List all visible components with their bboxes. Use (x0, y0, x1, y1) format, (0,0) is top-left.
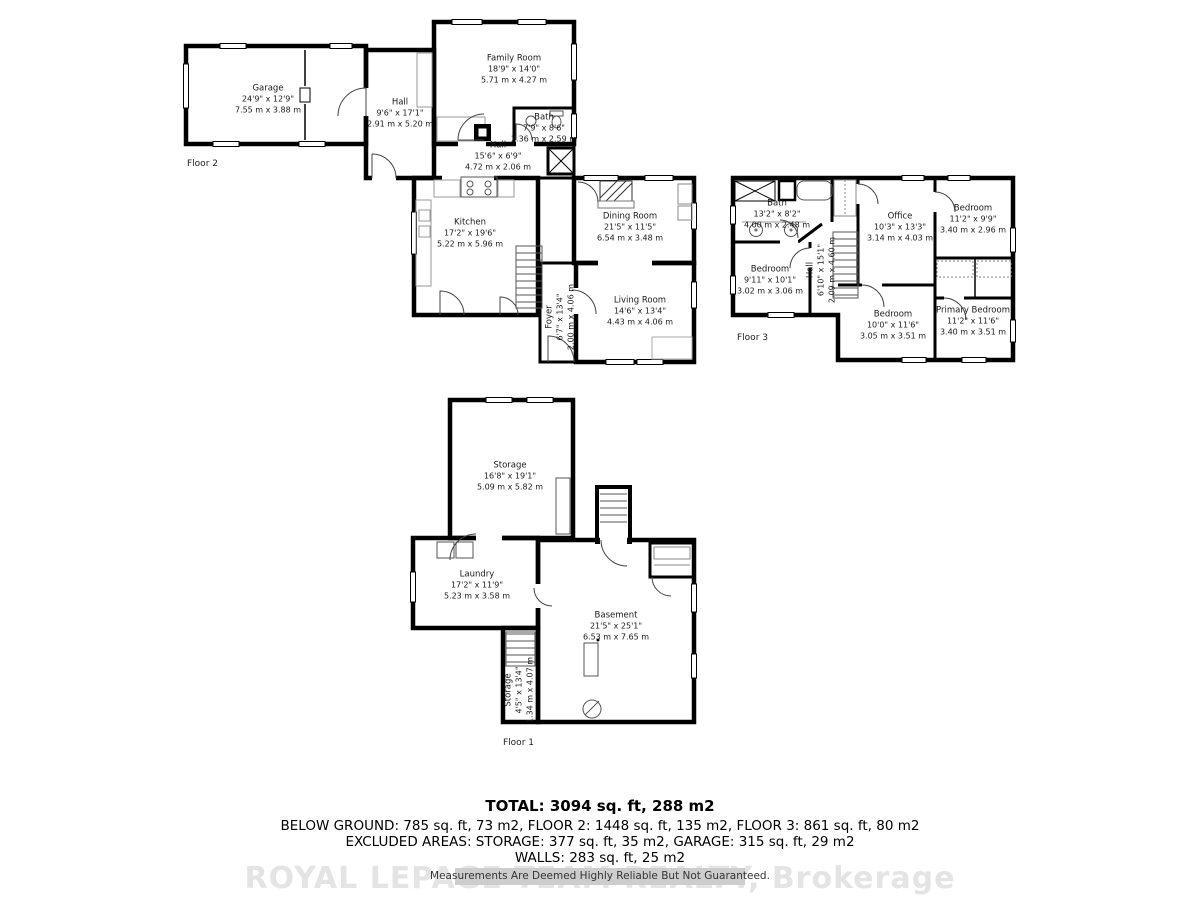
floor1-plan (411, 398, 697, 723)
room-label-bedroom-top-right: Bedroom 11'2" x 9'9" 3.40 m x 2.96 m (940, 203, 1006, 236)
room-name: Bedroom (940, 203, 1006, 214)
floor1-tag: Floor 1 (503, 738, 534, 748)
storage-closet (556, 478, 570, 534)
bedroom-closet-shelves (937, 261, 1011, 277)
room-dim-metric: 2.91 m x 5.20 m (367, 120, 433, 131)
room-name: Dining Room (597, 211, 663, 222)
room-dim-imperial: 14'6" x 13'4" (607, 307, 673, 318)
room-label-laundry: Laundry 17'2" x 11'9" 5.23 m x 3.58 m (444, 569, 510, 602)
room-dim-metric: 7.55 m x 3.88 m (235, 106, 301, 117)
floor2-tag: Floor 2 (187, 159, 218, 169)
room-dim-imperial: 10'3" x 13'3" (867, 223, 933, 234)
room-name: Basement (583, 610, 649, 621)
room-dim-metric: 3.40 m x 2.96 m (940, 226, 1006, 237)
room-dim-imperial: 6'10" x 15'1" (817, 237, 828, 303)
room-dim-imperial: 9'11" x 10'1" (737, 276, 803, 287)
room-dim-metric: 5.71 m x 4.27 m (481, 76, 547, 87)
room-label-garage: Garage 24'9" x 12'9" 7.55 m x 3.88 m (235, 83, 301, 116)
room-dim-metric: 4.72 m x 2.06 m (465, 163, 531, 174)
room-name: Primary Bedroom (936, 305, 1010, 316)
room-dim-imperial: 4'5" x 13'4" (515, 657, 526, 723)
room-label-storage-large: Storage 16'8" x 19'1" 5.09 m x 5.82 m (477, 460, 543, 493)
room-name: Office (867, 211, 933, 222)
room-dim-imperial: 17'2" x 11'9" (444, 581, 510, 592)
area-summary: TOTAL: 3094 sq. ft, 288 m2 BELOW GROUND:… (0, 797, 1200, 866)
room-label-basement: Basement 21'5" x 25'1" 6.53 m x 7.65 m (583, 610, 649, 643)
room-name: Living Room (607, 295, 673, 306)
room-dim-imperial: 6'7" x 13'4" (556, 284, 567, 350)
closet-x-icon (548, 148, 574, 174)
room-label-hall-floor3: Hall 6'10" x 15'1" 2.09 m x 4.60 m (805, 237, 838, 303)
room-label-foyer: Foyer 6'7" x 13'4" 2.00 m x 4.06 m (544, 284, 577, 350)
room-label-dining-room: Dining Room 21'5" x 11'5" 6.54 m x 3.48 … (597, 211, 663, 244)
room-name: Foyer (544, 284, 555, 350)
linen-closet (779, 181, 795, 200)
room-dim-metric: 5.23 m x 3.58 m (444, 592, 510, 603)
room-dim-imperial: 10'0" x 11'6" (860, 321, 926, 332)
room-label-hall-lower: Hall 15'6" x 6'9" 4.72 m x 2.06 m (465, 140, 531, 173)
room-dim-imperial: 18'9" x 14'0" (481, 65, 547, 76)
room-name: Hall (805, 237, 816, 303)
floor-areas: BELOW GROUND: 785 sq. ft, 73 m2, FLOOR 2… (0, 818, 1200, 834)
room-dim-imperial: 21'5" x 25'1" (583, 622, 649, 633)
dining-shelves (678, 184, 692, 220)
room-dim-imperial: 21'5" x 11'5" (597, 223, 663, 234)
room-dim-imperial: 13'2" x 8'2" (744, 210, 810, 221)
room-name: Bath (744, 198, 810, 209)
sofa (652, 337, 692, 359)
room-dim-imperial: 9'6" x 17'1" (367, 109, 433, 120)
room-dim-metric: 2.00 m x 4.06 m (567, 284, 578, 350)
room-label-family-room: Family Room 18'9" x 14'0" 5.71 m x 4.27 … (481, 53, 547, 86)
measurement-disclaimer: Measurements Are Deemed Highly Reliable … (0, 870, 1200, 882)
room-label-hall-upper: Hall 9'6" x 17'1" 2.91 m x 5.20 m (367, 97, 433, 130)
room-dim-metric: 1.34 m x 4.07 m (526, 657, 537, 723)
room-name: Garage (235, 83, 301, 94)
room-dim-imperial: 11'2" x 9'9" (940, 215, 1006, 226)
room-dim-imperial: 24'9" x 12'9" (235, 95, 301, 106)
room-label-living-room: Living Room 14'6" x 13'4" 4.43 m x 4.06 … (607, 295, 673, 328)
room-dim-metric: 3.14 m x 4.03 m (867, 234, 933, 245)
room-dim-metric: 5.22 m x 5.96 m (437, 240, 503, 251)
room-dim-imperial: 16'8" x 19'1" (477, 472, 543, 483)
room-name: Storage (477, 460, 543, 471)
fireplace-icon (598, 181, 634, 208)
basement-closet-shelves (654, 547, 690, 565)
room-dim-metric: 4.43 m x 4.06 m (607, 318, 673, 329)
room-dim-metric: 3.02 m x 3.06 m (737, 287, 803, 298)
chimney-icon (474, 124, 491, 141)
room-dim-metric: 4.00 m x 2.48 m (744, 221, 810, 232)
room-name: Bath (511, 112, 577, 123)
room-dim-metric: 6.54 m x 3.48 m (597, 234, 663, 245)
sump-pump-icon (583, 700, 601, 718)
floor3-tag: Floor 3 (737, 333, 768, 343)
floorplan-page: Garage 24'9" x 12'9" 7.55 m x 3.88 m Hal… (0, 0, 1200, 900)
excluded-areas: EXCLUDED AREAS: STORAGE: 377 sq. ft, 35 … (0, 834, 1200, 850)
hall-closet (834, 180, 856, 216)
room-name: Bedroom (860, 309, 926, 320)
room-dim-metric: 3.05 m x 3.51 m (860, 332, 926, 343)
room-label-bath-floor3: Bath 13'2" x 8'2" 4.00 m x 2.48 m (744, 198, 810, 231)
room-dim-imperial: 7'9" x 8'6" (511, 124, 577, 135)
room-dim-metric: 6.53 m x 7.65 m (583, 633, 649, 644)
room-dim-metric: 3.40 m x 3.51 m (936, 328, 1010, 339)
room-label-office: Office 10'3" x 13'3" 3.14 m x 4.03 m (867, 211, 933, 244)
floorplan-drawing (0, 0, 1200, 900)
floor1-walls (413, 400, 694, 722)
room-dim-imperial: 17'2" x 19'6" (437, 229, 503, 240)
bathtub-icon (797, 181, 832, 200)
room-label-bedroom-bottom: Bedroom 10'0" x 11'6" 3.05 m x 3.51 m (860, 309, 926, 342)
room-label-storage-small: Storage 4'5" x 13'4" 1.34 m x 4.07 m (503, 657, 536, 723)
room-name: Storage (503, 657, 514, 723)
room-dim-metric: 5.09 m x 5.82 m (477, 483, 543, 494)
room-name: Bedroom (737, 264, 803, 275)
room-dim-imperial: 15'6" x 6'9" (465, 152, 531, 163)
room-name: Family Room (481, 53, 547, 64)
furnace-icon (584, 639, 600, 677)
room-name: Laundry (444, 569, 510, 580)
total-area: TOTAL: 3094 sq. ft, 288 m2 (0, 797, 1200, 815)
room-name: Kitchen (437, 217, 503, 228)
room-name: Hall (367, 97, 433, 108)
room-name: Hall (465, 140, 531, 151)
room-label-kitchen: Kitchen 17'2" x 19'6" 5.22 m x 5.96 m (437, 217, 503, 250)
room-label-primary-bedroom: Primary Bedroom 11'2" x 11'6" 3.40 m x 3… (936, 305, 1010, 338)
room-label-bedroom-left: Bedroom 9'11" x 10'1" 3.02 m x 3.06 m (737, 264, 803, 297)
room-dim-metric: 2.09 m x 4.60 m (828, 237, 839, 303)
room-dim-imperial: 11'2" x 11'6" (936, 317, 1010, 328)
